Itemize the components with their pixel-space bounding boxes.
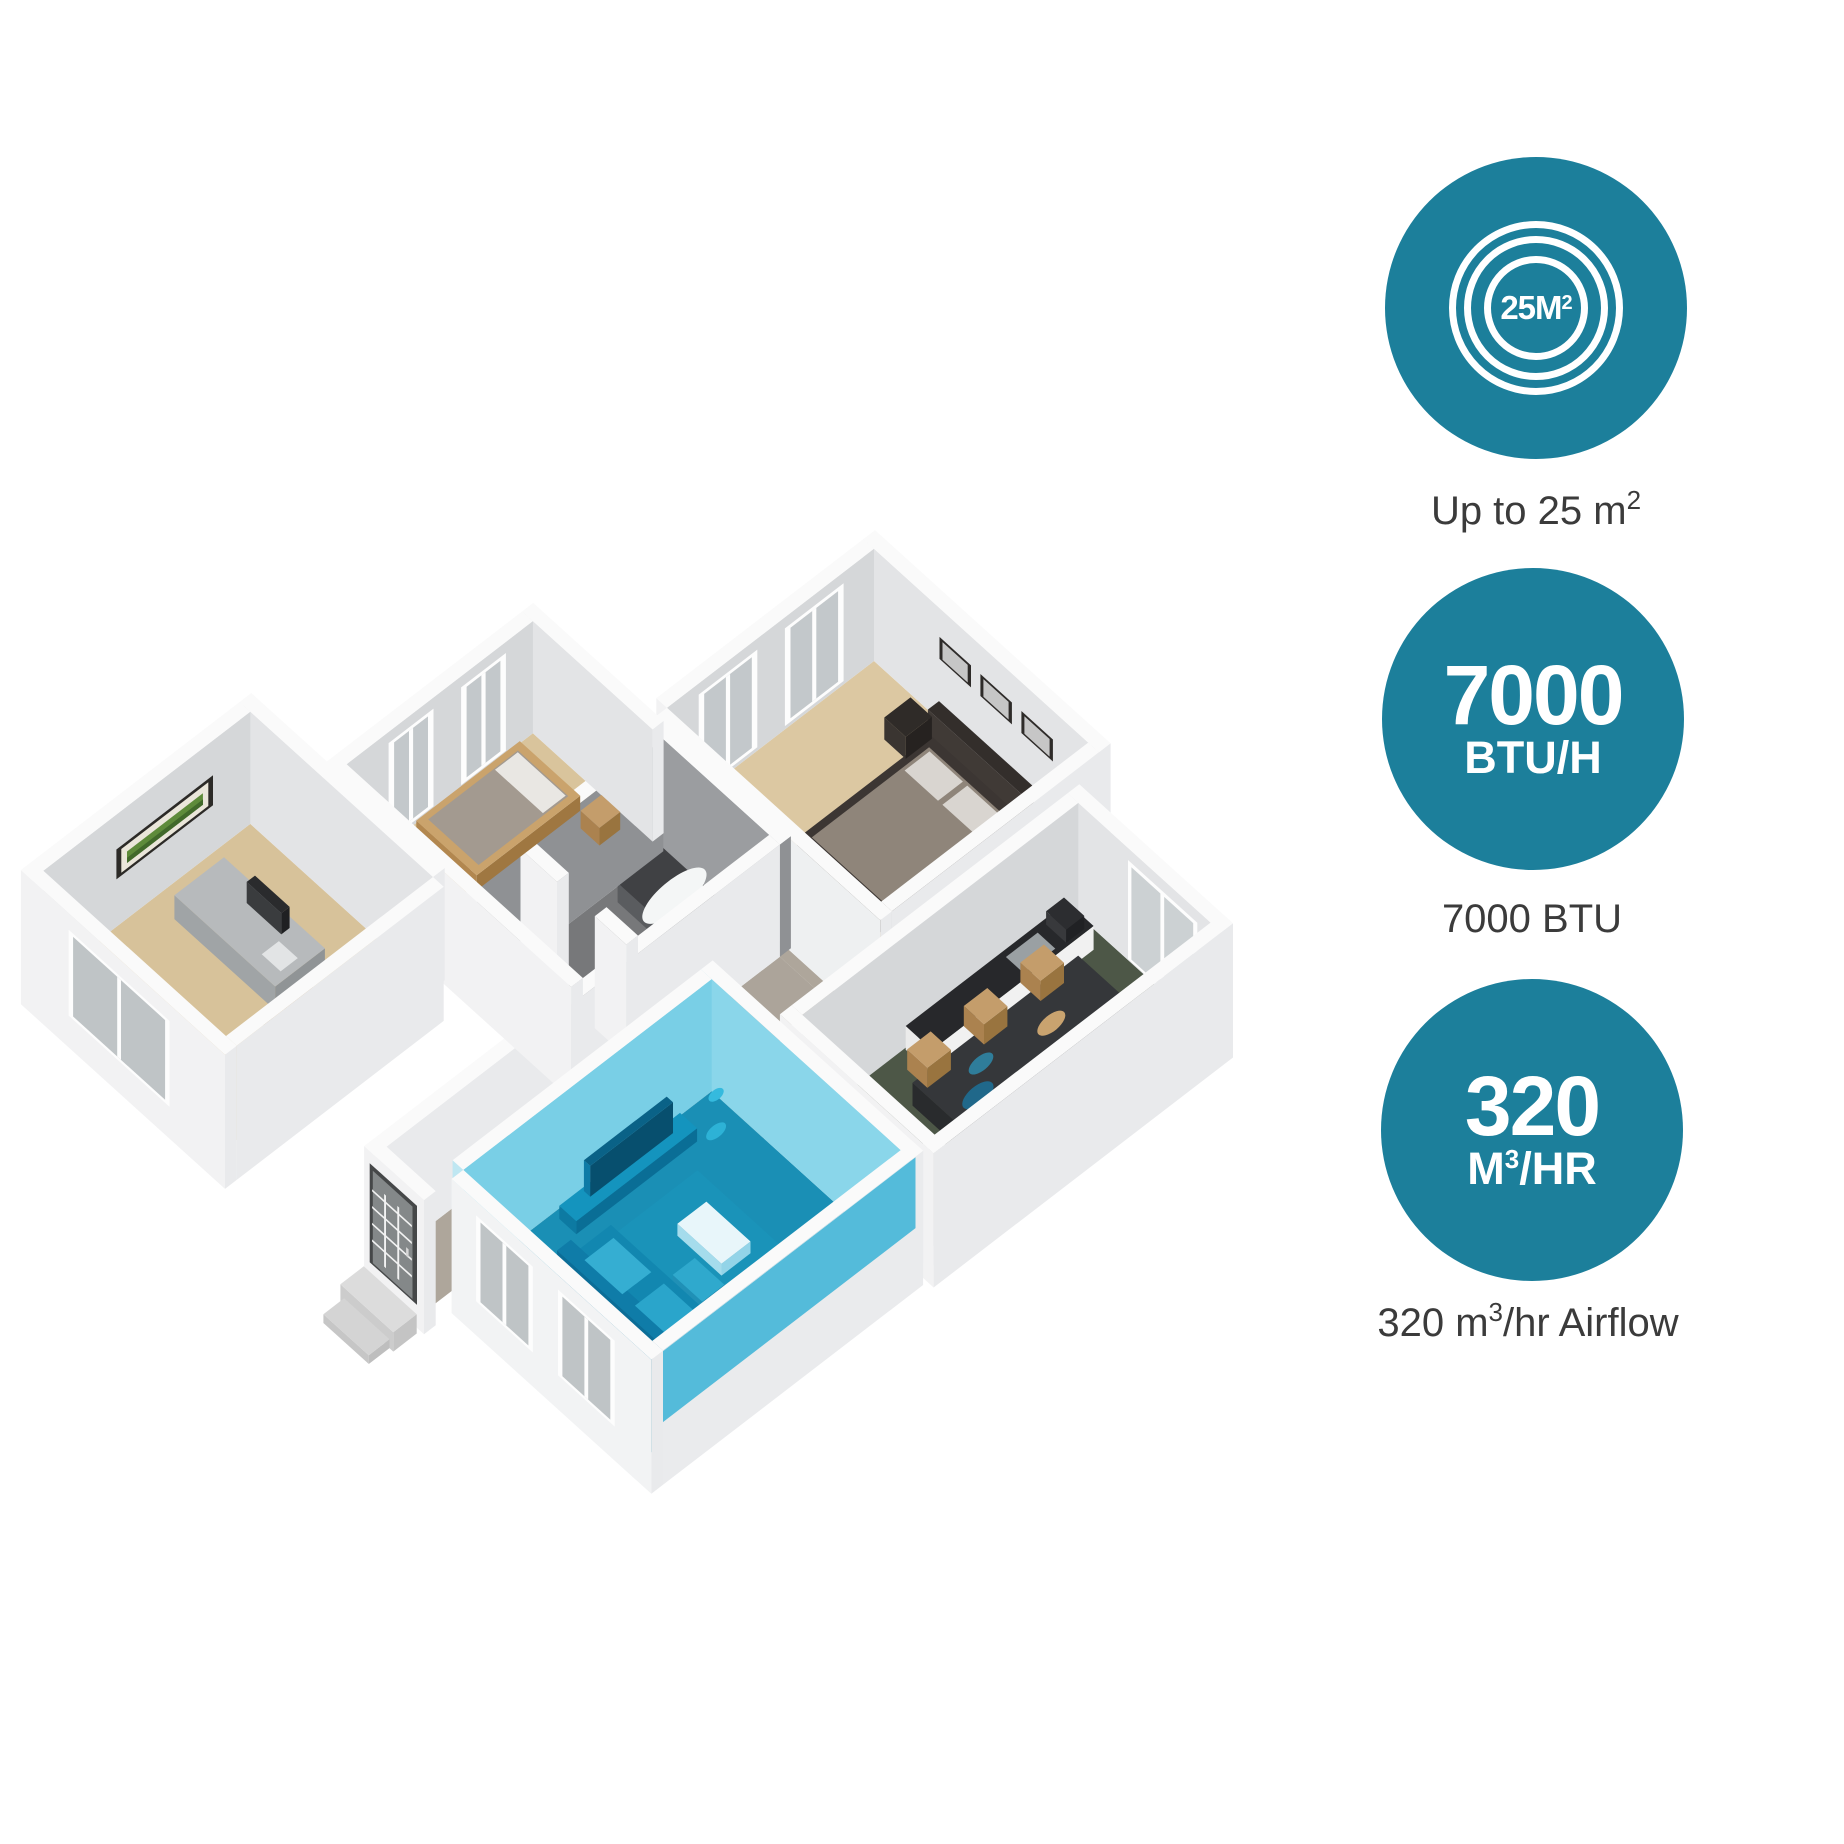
coverage-badge: 25M2 — [1385, 157, 1687, 459]
btu-badge-number: 7000 — [1444, 657, 1623, 734]
btu-badge-unit: BTU/H — [1464, 734, 1601, 781]
airflow-caption: 320 m3/hr Airflow — [1338, 1301, 1718, 1346]
coverage-ring-middle: 25M2 — [1464, 236, 1608, 380]
room-area-sup: 2 — [786, 1696, 805, 1734]
coverage-ring-inner: 25M2 — [1484, 256, 1588, 360]
btu-badge: 7000 BTU/H — [1382, 568, 1684, 870]
airflow-badge-unit: M3/HR — [1467, 1145, 1596, 1192]
airflow-badge: 320 M3/HR — [1381, 979, 1683, 1281]
coverage-rings-icon: 25M2 — [1449, 221, 1623, 395]
floorplan-illustration — [20, 440, 1260, 1600]
floorplan-3d: 25 m2 — [20, 440, 1260, 1600]
room-area-label: 25 m2 — [595, 1692, 865, 1757]
coverage-caption: Up to 25 m2 — [1346, 489, 1726, 534]
coverage-badge-text: 25M2 — [1500, 289, 1571, 327]
btu-caption: 7000 BTU — [1342, 897, 1722, 942]
room-area-value: 25 m — [657, 1693, 785, 1756]
airflow-badge-number: 320 — [1465, 1068, 1599, 1145]
